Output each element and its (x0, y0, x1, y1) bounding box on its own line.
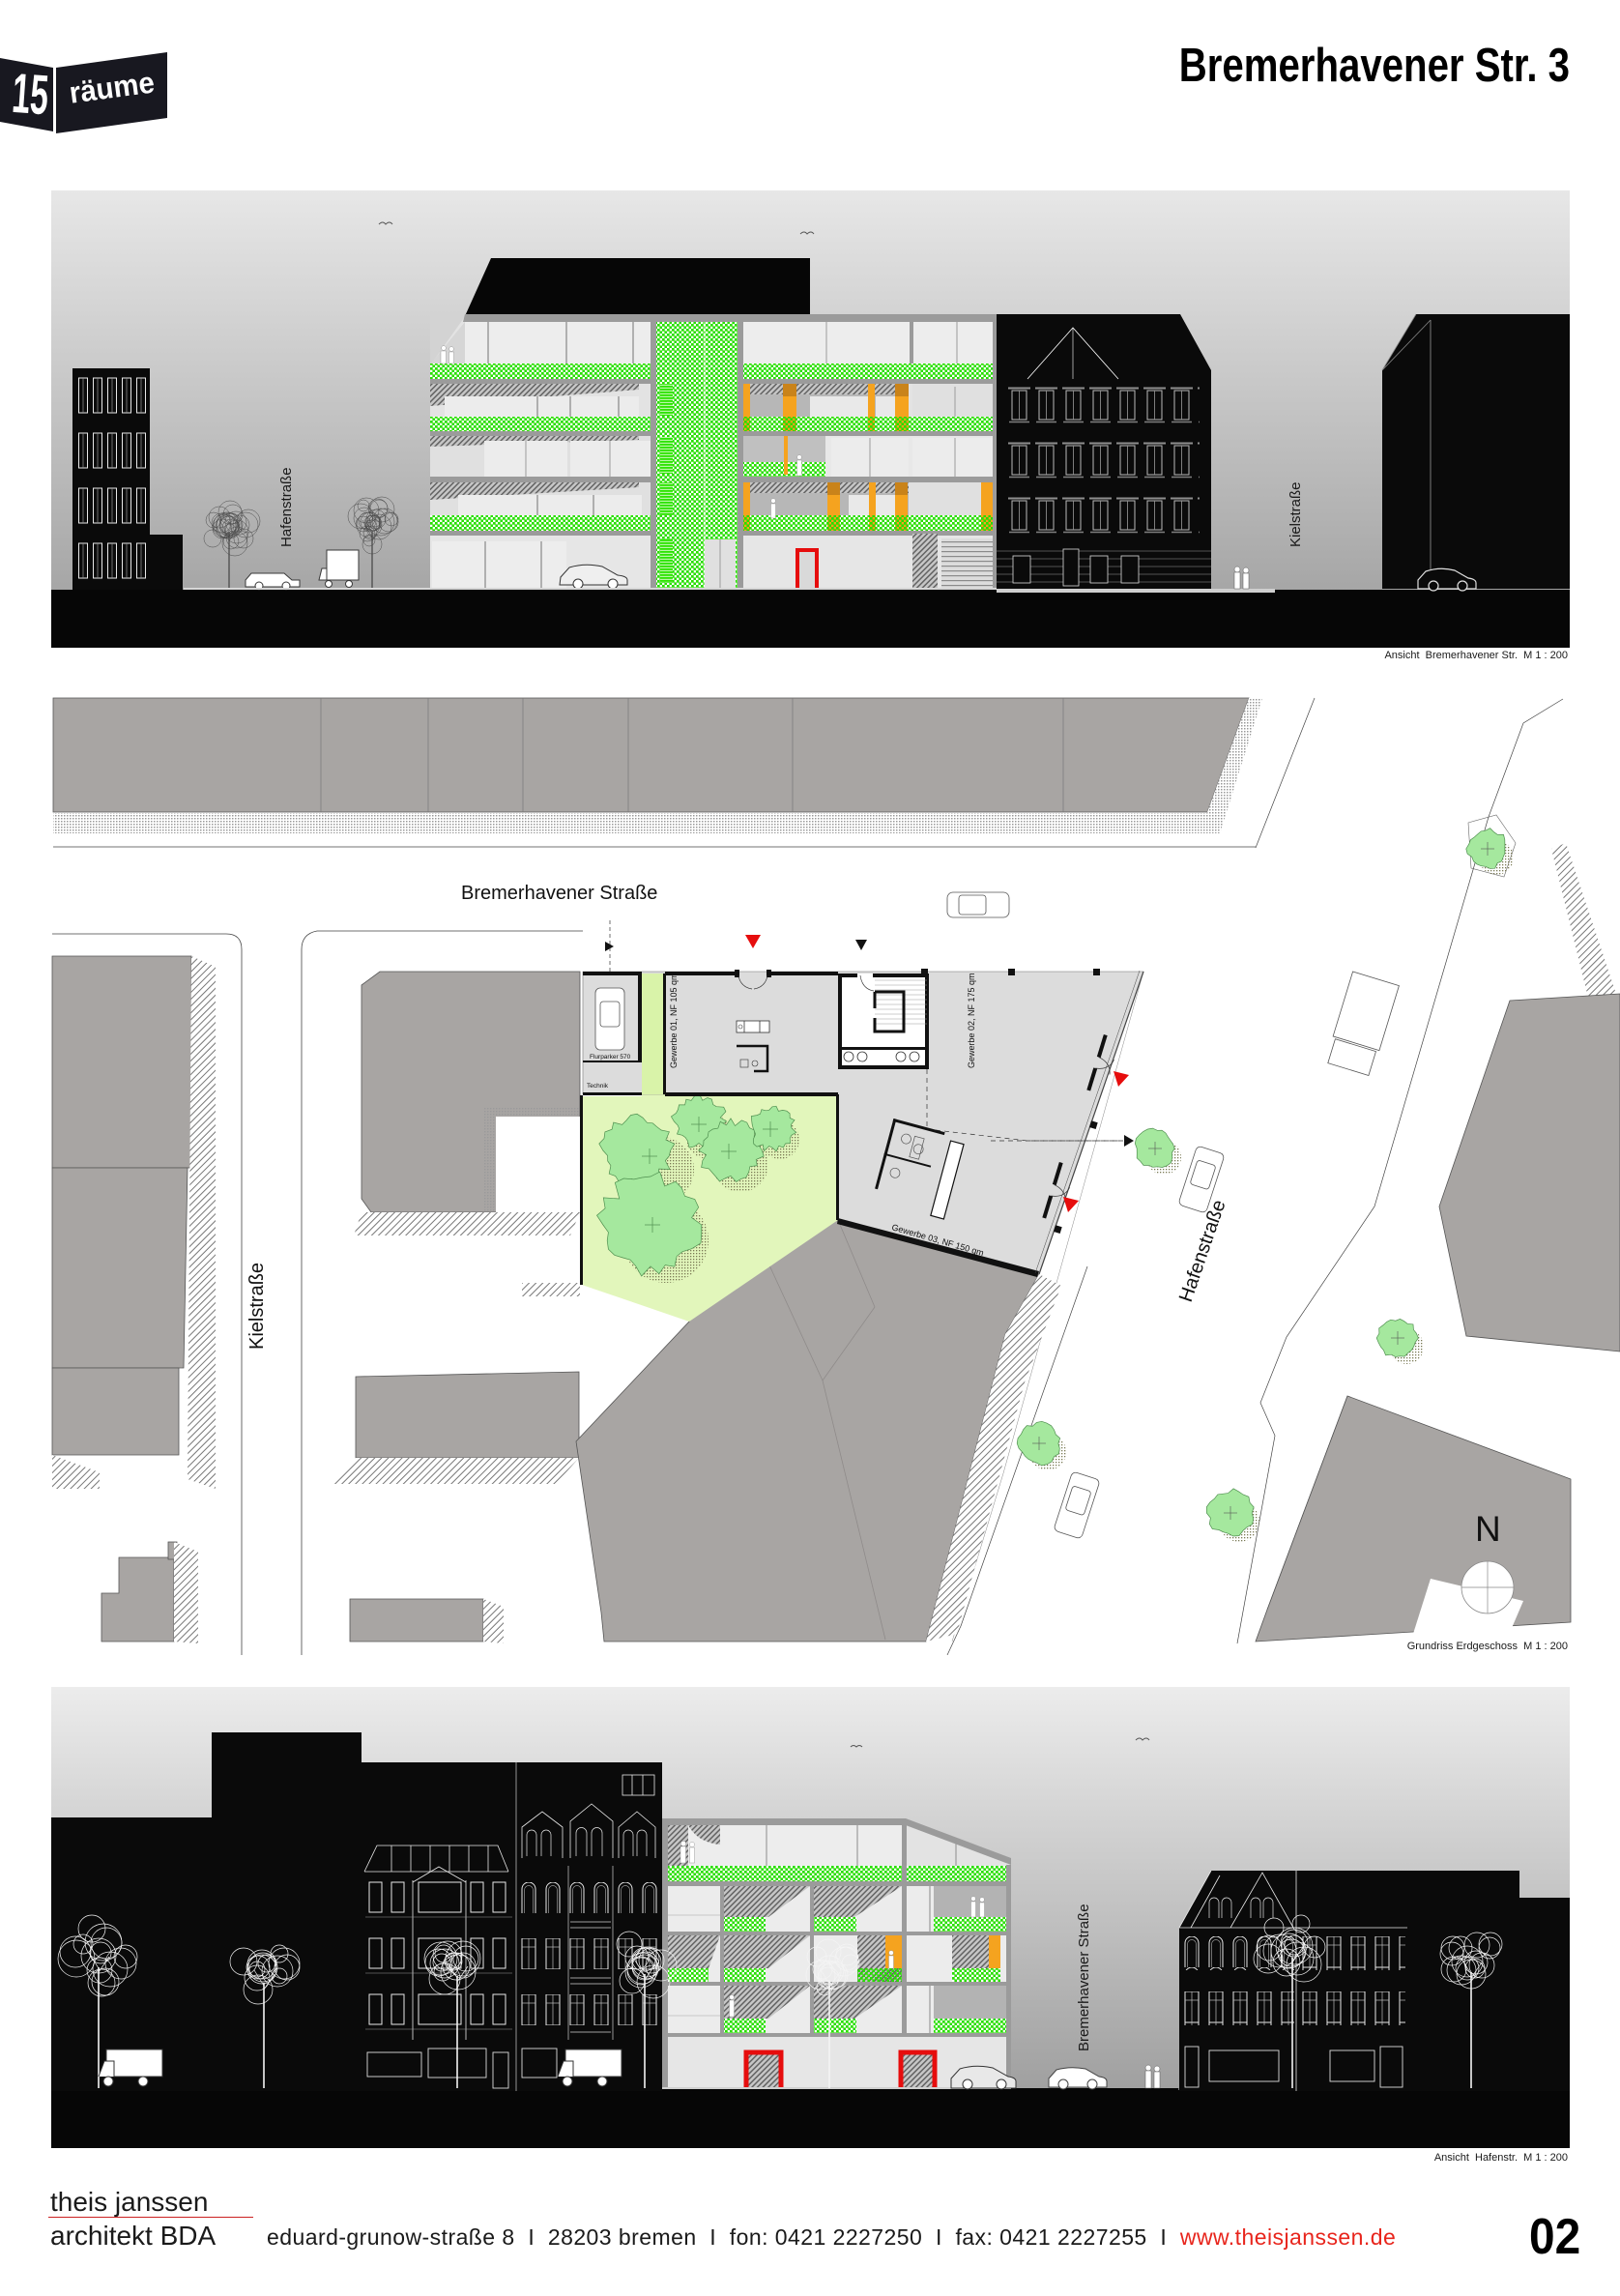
svg-text:Gewerbe 01, NF 105 qm: Gewerbe 01, NF 105 qm (669, 973, 679, 1068)
svg-text:Bremerhavener Straße: Bremerhavener Straße (461, 883, 657, 904)
svg-text:Hafenstraße: Hafenstraße (1175, 1197, 1230, 1304)
svg-text:Flurparker 570: Flurparker 570 (590, 1054, 631, 1061)
svg-text:Kielstraße: Kielstraße (1287, 481, 1304, 547)
svg-text:Gewerbe 02, NF 175 qm: Gewerbe 02, NF 175 qm (967, 973, 976, 1068)
svg-text:N: N (1475, 1509, 1501, 1549)
svg-text:15: 15 (10, 62, 50, 127)
svg-text:Technik: Technik (587, 1083, 609, 1090)
svg-text:Kielstraße: Kielstraße (246, 1263, 268, 1350)
svg-text:Hafenstraße: Hafenstraße (278, 467, 295, 547)
svg-text:Bremerhavener Straße: Bremerhavener Straße (1076, 1904, 1092, 2051)
